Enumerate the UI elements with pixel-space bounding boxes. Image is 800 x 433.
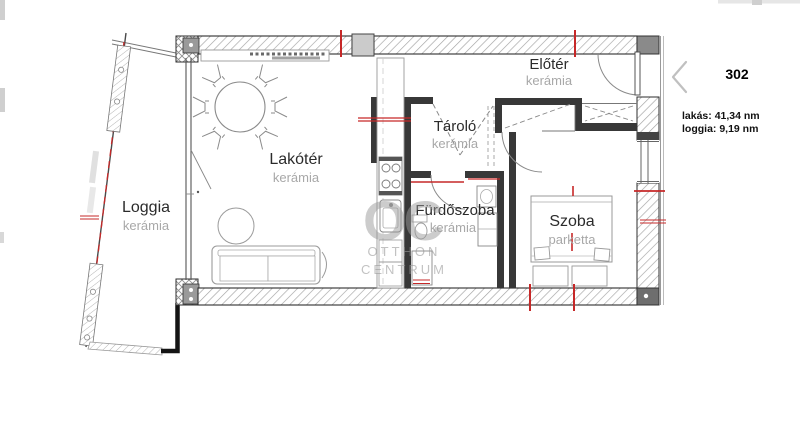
pillow-right (594, 248, 610, 261)
floor-label-lakoter: kerámia (273, 170, 320, 185)
floorplan-drawing: Loggia kerámia Lakótér kerámia Tároló ke… (0, 0, 800, 433)
room-label-szoba: Szoba (549, 213, 594, 230)
room-label-eloter: Előtér (529, 56, 568, 73)
loggia-structure (80, 33, 178, 355)
floorplan-page: Loggia kerámia Lakótér kerámia Tároló ke… (0, 0, 800, 433)
loggia-glass-wall (186, 58, 211, 280)
column-top-right (637, 36, 659, 54)
info-panel: 302 lakás: 41,34 nm loggia: 9,19 nm (673, 62, 760, 135)
right-wall-lower (637, 183, 659, 288)
floor-label-tarolo: kerámia (432, 136, 479, 151)
room-label-lakoter: Lakótér (269, 151, 323, 168)
szoba-window (637, 140, 659, 183)
bath-top-wall-left (411, 171, 431, 178)
bed-bench-right (572, 266, 607, 286)
watermark-monogram: OC (363, 189, 443, 252)
watermark-line2: CENTRUM (361, 262, 447, 277)
wardrobe1-left-wall (495, 98, 502, 133)
sofa (212, 246, 327, 284)
radiator (201, 50, 329, 61)
pillow-left (534, 247, 550, 260)
railing-segment-upper (107, 45, 131, 132)
watermark-line1: OTTHON (368, 244, 441, 259)
wardrobe1-top-wall (495, 98, 575, 105)
bottom-wall (198, 288, 637, 305)
bath-right-wall (497, 171, 504, 288)
floor-label-eloter: kerámia (526, 73, 573, 88)
dining-table (193, 65, 287, 150)
wardrobe-divider-wall (575, 98, 582, 131)
unit-number: 302 (725, 66, 749, 82)
floor-label-szoba: parketta (549, 232, 597, 247)
szoba-door-arc (502, 132, 542, 172)
floor-label-loggia: kerámia (123, 218, 170, 233)
chevron-left-icon[interactable] (673, 62, 686, 92)
room-label-tarolo: Tároló (434, 118, 477, 135)
watermark: OC OTTHON CENTRUM (361, 189, 447, 277)
area-line-loggia: loggia: 9,19 nm (682, 123, 758, 135)
entrance-door-leaf (635, 52, 640, 95)
loggia-bottom-strip (88, 342, 162, 355)
room-label-loggia: Loggia (122, 199, 170, 216)
top-wall-column (352, 34, 374, 56)
coffee-table (218, 208, 254, 244)
top-wall-right (374, 36, 637, 54)
right-wall-lintel (637, 132, 659, 140)
entrance-door-arc (598, 54, 639, 95)
corner-wall-thick (161, 303, 178, 351)
bed-bench-left (533, 266, 568, 286)
area-line-lakas: lakás: 41,34 nm (682, 110, 760, 122)
wardrobe2-bottom-wall (582, 123, 637, 131)
railing-segment-lower (80, 263, 103, 346)
